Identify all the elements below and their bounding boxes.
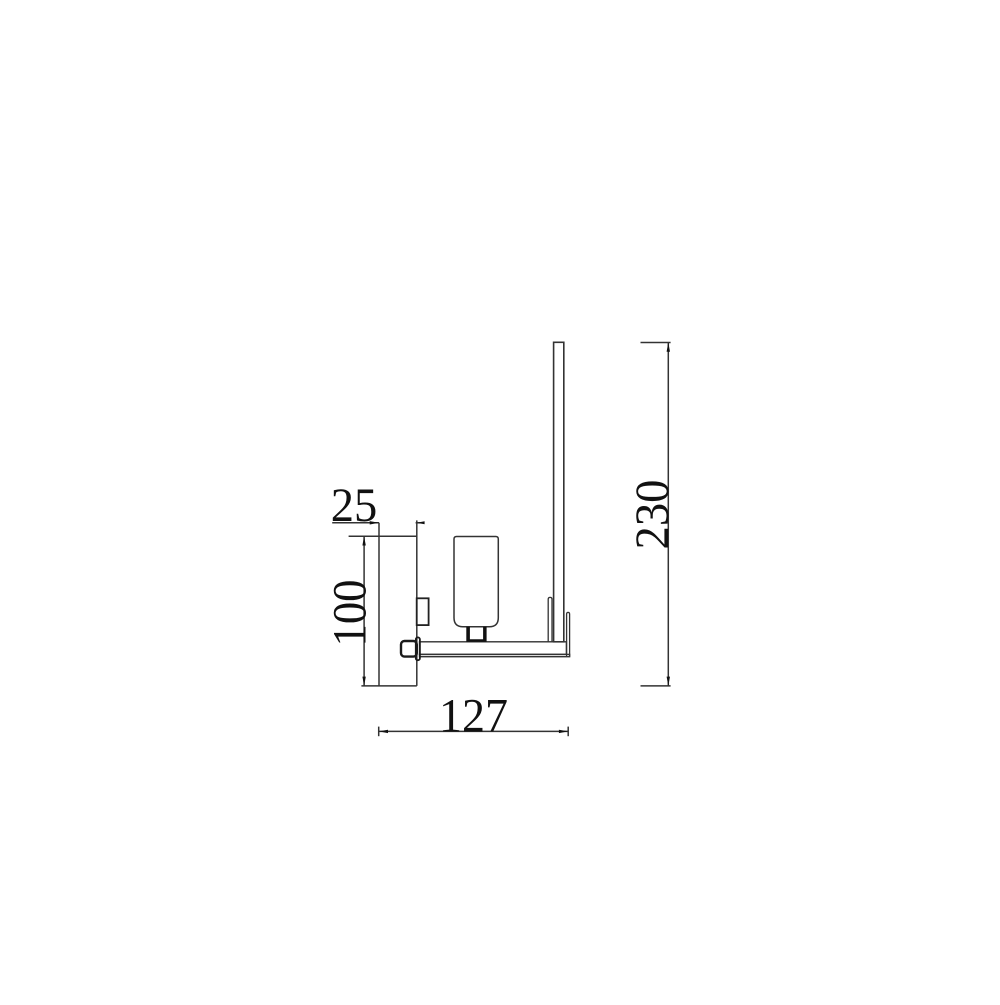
- svg-text:127: 127: [439, 690, 508, 743]
- svg-text:25: 25: [331, 479, 378, 532]
- svg-text:100: 100: [324, 580, 377, 647]
- svg-text:230: 230: [626, 480, 679, 550]
